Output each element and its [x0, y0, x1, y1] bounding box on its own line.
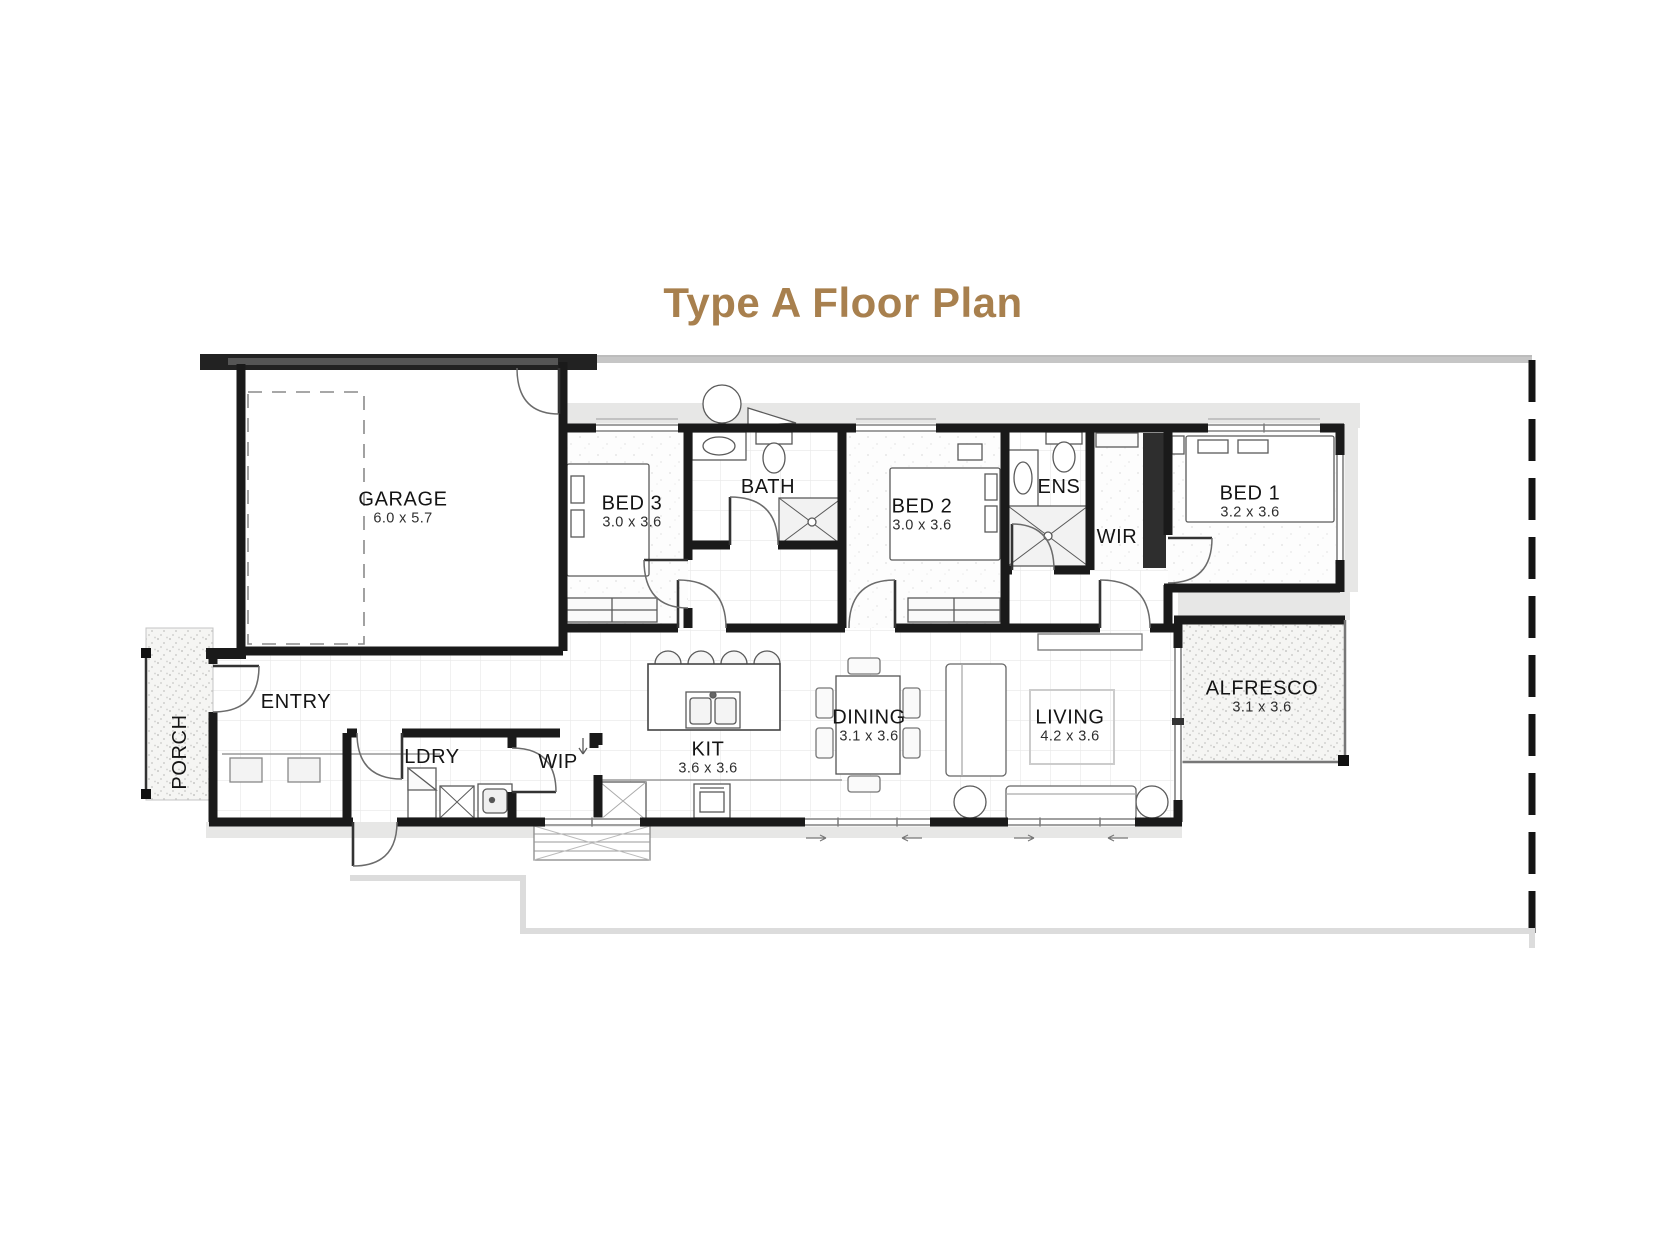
tv-unit [1038, 634, 1142, 650]
window-living [1008, 818, 1135, 827]
bed1-furniture [1172, 436, 1334, 522]
bed3-furniture [567, 464, 657, 622]
garage-floor [237, 362, 563, 655]
window-bed1-side [1336, 455, 1345, 560]
round-side-table [1136, 786, 1168, 818]
dining-table [836, 676, 900, 774]
bath-vanity [692, 432, 746, 460]
page-title: Type A Floor Plan [663, 279, 1022, 327]
shower-rose-icon [808, 518, 816, 526]
alfresco-area [1183, 620, 1345, 762]
floor-plan-drawing [0, 0, 1667, 1250]
hall-floor [688, 545, 842, 628]
window-kitchen-slider [545, 818, 640, 827]
armchair-sectional [946, 664, 1006, 776]
ens-toilet [1053, 442, 1075, 472]
alfresco-corner-post [1338, 755, 1349, 766]
sofa [1006, 786, 1136, 820]
site-boundary-bottom [350, 878, 1532, 948]
bath-toilet-cistern [756, 432, 792, 444]
deck-steps [534, 826, 650, 860]
wir-robe [1143, 433, 1166, 568]
wir-shelf [1096, 433, 1138, 447]
porch-post [141, 648, 151, 658]
floor-plan-page: Type A Floor Plan GARAGE 6.0 x 5.7 BED 3… [0, 0, 1667, 1250]
porch-post [141, 789, 151, 799]
bath-toilet [763, 443, 785, 473]
window-dining [805, 818, 930, 827]
entry-stool [288, 758, 320, 782]
porch-area [146, 628, 213, 800]
entry-stool [230, 758, 262, 782]
kitchen-island [648, 651, 780, 730]
round-chair [954, 786, 986, 818]
ens-vanity [1008, 450, 1038, 508]
alfresco-glass-door [1172, 648, 1184, 800]
